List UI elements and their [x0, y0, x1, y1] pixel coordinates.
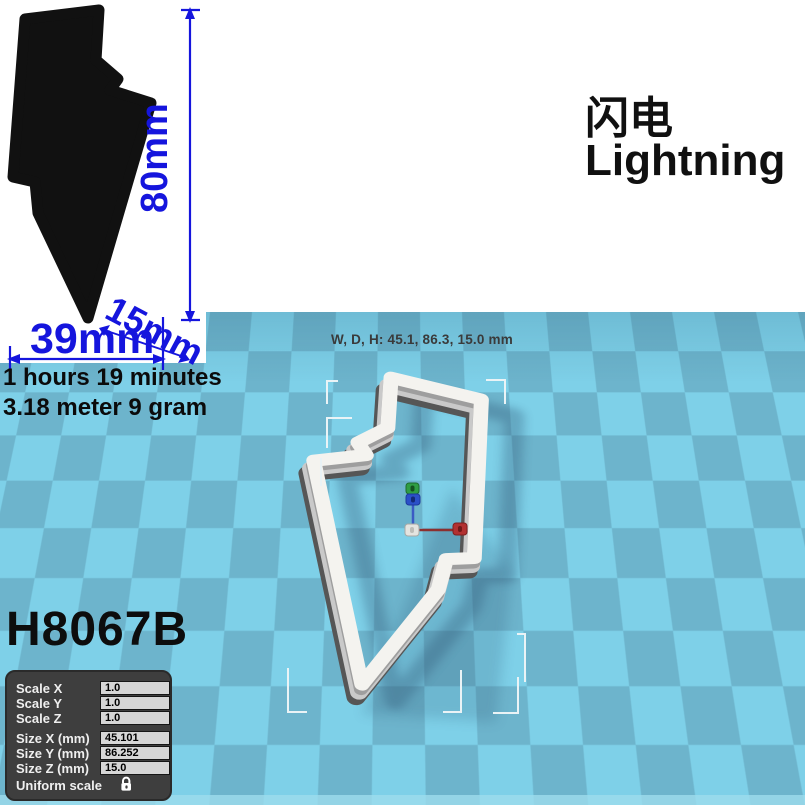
scale-y-row: Scale Y 1.0: [7, 696, 170, 711]
size-z-label: Size Z (mm): [16, 761, 89, 776]
uniform-scale-label: Uniform scale: [16, 778, 102, 793]
size-x-row: Size X (mm) 45.101: [7, 731, 170, 746]
size-z-field[interactable]: 15.0: [100, 761, 170, 775]
print-stats: 1 hours 19 minutes 3.18 meter 9 gram: [3, 363, 222, 423]
size-y-label: Size Y (mm): [16, 746, 89, 761]
scale-z-field[interactable]: 1.0: [100, 711, 170, 725]
scale-x-row: Scale X 1.0: [7, 681, 170, 696]
gizmo-z-handle-blue[interactable]: [406, 494, 420, 505]
gizmo-x-handle-red[interactable]: [453, 523, 467, 535]
scale-z-label: Scale Z: [16, 711, 62, 726]
size-y-row: Size Y (mm) 86.252: [7, 746, 170, 761]
uniform-scale-row: Uniform scale: [7, 778, 170, 793]
model-size-readout: W, D, H: 45.1, 86.3, 15.0 mm: [331, 332, 513, 347]
scale-x-field[interactable]: 1.0: [100, 681, 170, 695]
height-dimension-label: 80mm: [134, 103, 176, 213]
print-time: 1 hours 19 minutes: [3, 363, 222, 393]
model-title-english: Lightning: [585, 136, 785, 186]
size-x-field[interactable]: 45.101: [100, 731, 170, 745]
scale-y-label: Scale Y: [16, 696, 62, 711]
model-code: H8067B: [6, 602, 188, 657]
gizmo-y-handle-green[interactable]: [406, 483, 419, 494]
size-z-row: Size Z (mm) 15.0: [7, 761, 170, 776]
uniform-scale-lock-icon[interactable]: [119, 776, 134, 792]
scale-x-label: Scale X: [16, 681, 62, 696]
scale-z-row: Scale Z 1.0: [7, 711, 170, 726]
scale-y-field[interactable]: 1.0: [100, 696, 170, 710]
material-usage: 3.18 meter 9 gram: [3, 393, 222, 423]
size-x-label: Size X (mm): [16, 731, 90, 746]
gizmo-center-handle[interactable]: [405, 524, 419, 536]
slicer-screenshot: 80mm 39mm 15mm 1 hours 19 minutes 3.18 m…: [0, 0, 805, 805]
dimension-diagram: 80mm 39mm 15mm: [0, 0, 280, 380]
scale-tool-panel: Scale X 1.0 Scale Y 1.0 Scale Z 1.0 Size…: [5, 670, 172, 801]
size-y-field[interactable]: 86.252: [100, 746, 170, 760]
lightning-silhouette: [13, 10, 151, 318]
